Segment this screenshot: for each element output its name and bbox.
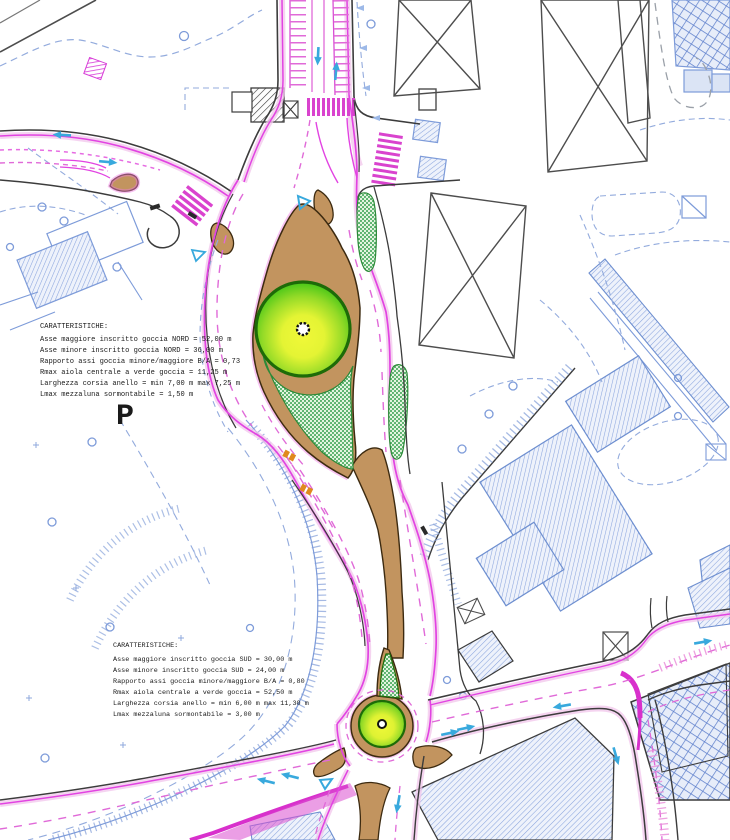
- svg-text:Rmax aiola centrale a verde go: Rmax aiola centrale a verde goccia = 52,…: [113, 689, 292, 697]
- svg-text:Lmax mezzaluna sormontabile =: Lmax mezzaluna sormontabile = 3,00 m: [113, 711, 260, 719]
- svg-text:Asse minore inscritto goccia S: Asse minore inscritto goccia SUD = 24,00…: [113, 667, 284, 675]
- svg-text:Asse maggiore inscritto goccia: Asse maggiore inscritto goccia SUD = 30,…: [113, 656, 292, 664]
- svg-text:Larghezza corsia anello = min: Larghezza corsia anello = min 6,00 m max…: [113, 700, 309, 708]
- svg-text:P: P: [116, 400, 134, 434]
- svg-text:Rmax aiola centrale a verde go: Rmax aiola centrale a verde goccia = 11,…: [40, 369, 227, 377]
- svg-text:Rapporto assi goccia minore/ma: Rapporto assi goccia minore/maggiore B/A…: [113, 678, 305, 686]
- svg-text:Asse minore inscritto goccia N: Asse minore inscritto goccia NORD = 36,0…: [40, 347, 223, 355]
- svg-text:Larghezza corsia anello = min: Larghezza corsia anello = min 7,00 m max…: [40, 380, 240, 388]
- svg-text:Rapporto assi goccia minore/ma: Rapporto assi goccia minore/maggiore B/A…: [40, 358, 240, 366]
- svg-text:Asse maggiore inscritto goccia: Asse maggiore inscritto goccia NORD = 52…: [40, 336, 232, 344]
- svg-text:CARATTERISTICHE:: CARATTERISTICHE:: [40, 323, 108, 331]
- svg-text:CARATTERISTICHE:: CARATTERISTICHE:: [113, 642, 178, 650]
- svg-text:Lmax mezzaluna sormontabile =: Lmax mezzaluna sormontabile = 1,50 m: [40, 391, 193, 399]
